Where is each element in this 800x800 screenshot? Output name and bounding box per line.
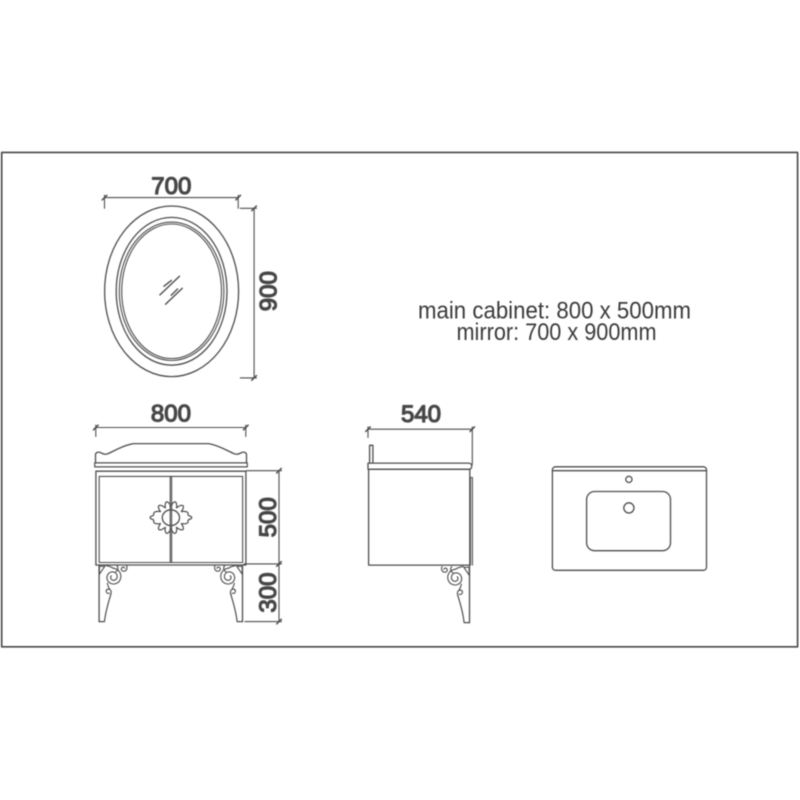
svg-text:300: 300: [255, 573, 282, 613]
svg-text:mirror: 700 x 900mm: mirror: 700 x 900mm: [457, 319, 657, 346]
svg-text:800: 800: [151, 400, 191, 427]
svg-text:900: 900: [256, 271, 283, 311]
svg-text:540: 540: [401, 401, 441, 428]
svg-text:700: 700: [151, 173, 191, 200]
svg-text:500: 500: [255, 497, 282, 537]
